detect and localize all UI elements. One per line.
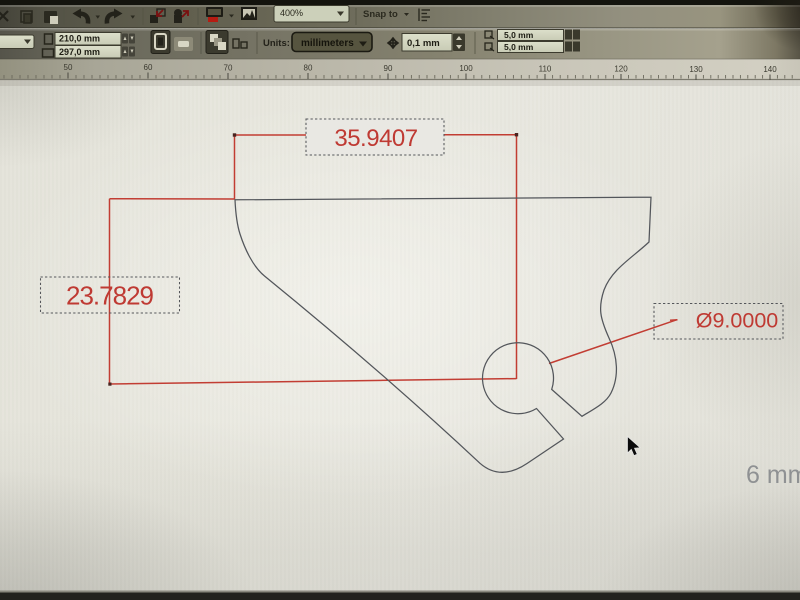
svg-text:100: 100 bbox=[459, 64, 473, 73]
svg-text:Units:: Units: bbox=[263, 38, 290, 49]
svg-text:5,0 mm: 5,0 mm bbox=[504, 42, 534, 52]
svg-text:50: 50 bbox=[64, 63, 73, 72]
svg-text:60: 60 bbox=[144, 63, 153, 72]
svg-text:0,1 mm: 0,1 mm bbox=[407, 38, 440, 49]
svg-text:130: 130 bbox=[689, 65, 703, 74]
svg-text:millimeters: millimeters bbox=[301, 38, 354, 49]
svg-text:5,0 mm: 5,0 mm bbox=[504, 30, 534, 40]
svg-text:297,0 mm: 297,0 mm bbox=[59, 47, 100, 57]
svg-text:Snap to: Snap to bbox=[363, 9, 398, 20]
svg-text:120: 120 bbox=[614, 65, 628, 74]
svg-text:90: 90 bbox=[384, 64, 393, 73]
svg-text:Ø9.0000: Ø9.0000 bbox=[696, 309, 779, 333]
svg-text:80: 80 bbox=[304, 64, 313, 73]
svg-text:140: 140 bbox=[763, 65, 777, 74]
svg-text:210,0 mm: 210,0 mm bbox=[59, 34, 100, 44]
svg-text:23.7829: 23.7829 bbox=[66, 281, 154, 311]
svg-text:110: 110 bbox=[539, 65, 552, 74]
svg-text:35.9407: 35.9407 bbox=[334, 125, 417, 152]
svg-text:6 mm: 6 mm bbox=[746, 461, 800, 489]
svg-text:400%: 400% bbox=[280, 8, 303, 18]
svg-text:70: 70 bbox=[224, 64, 233, 73]
